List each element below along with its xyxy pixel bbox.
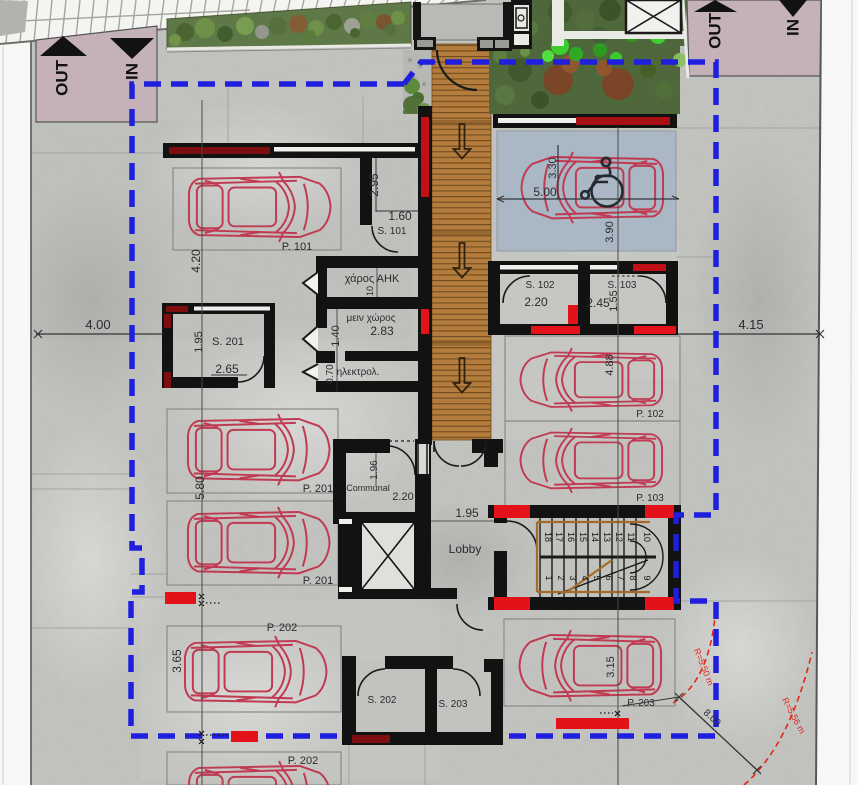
svg-text:4.00: 4.00 — [85, 317, 110, 332]
svg-text:13: 13 — [602, 532, 612, 542]
svg-text:P. 203: P. 203 — [627, 698, 655, 709]
svg-text:S. 203: S. 203 — [439, 699, 468, 710]
svg-text:P. 201: P. 201 — [303, 575, 333, 587]
svg-text:ηλεκτρολ.: ηλεκτρολ. — [337, 367, 380, 378]
svg-text:P. 103: P. 103 — [636, 493, 664, 504]
svg-text:S. 202: S. 202 — [368, 695, 397, 706]
svg-text:2.20: 2.20 — [392, 491, 413, 503]
svg-text:9: 9 — [642, 575, 652, 580]
svg-text:4.20: 4.20 — [189, 249, 203, 273]
svg-text:4: 4 — [580, 575, 590, 580]
svg-text:17: 17 — [554, 532, 564, 542]
svg-text:S. 103: S. 103 — [608, 280, 637, 291]
svg-text:3.30: 3.30 — [547, 157, 559, 178]
svg-text:2: 2 — [556, 575, 566, 580]
svg-text:P. 101: P. 101 — [282, 241, 312, 253]
svg-text:3: 3 — [568, 575, 578, 580]
svg-text:8: 8 — [628, 575, 638, 580]
svg-text:2.83: 2.83 — [370, 324, 394, 338]
svg-text:1.95: 1.95 — [193, 331, 205, 352]
svg-text:2.20: 2.20 — [524, 295, 548, 309]
svg-text:1.95: 1.95 — [455, 506, 479, 520]
svg-text:P. 102: P. 102 — [636, 409, 664, 420]
svg-text:11: 11 — [626, 532, 636, 541]
svg-text:2.95: 2.95 — [367, 173, 381, 197]
svg-text:2.65: 2.65 — [215, 362, 239, 376]
svg-text:16: 16 — [566, 532, 576, 542]
svg-text:μειν χώρος: μειν χώρος — [346, 312, 395, 324]
svg-text:OUT: OUT — [52, 59, 71, 96]
svg-text:0.70: 0.70 — [325, 364, 336, 384]
svg-text:1.40: 1.40 — [330, 325, 342, 346]
svg-text:5.80: 5.80 — [193, 476, 207, 500]
svg-text:P. 202: P. 202 — [288, 755, 318, 767]
svg-text:10: 10 — [642, 532, 652, 542]
svg-text:1.55: 1.55 — [608, 290, 620, 311]
svg-text:1.60: 1.60 — [388, 209, 412, 223]
svg-text:3.90: 3.90 — [604, 221, 616, 242]
svg-text:3.65: 3.65 — [170, 649, 184, 673]
svg-text:12: 12 — [614, 532, 624, 542]
svg-text:Communal: Communal — [346, 483, 390, 493]
svg-text:3.15: 3.15 — [605, 656, 617, 677]
svg-text:1.96: 1.96 — [369, 460, 380, 480]
svg-text:χάρος ΑΗΚ: χάρος ΑΗΚ — [345, 273, 400, 285]
svg-text:S. 102: S. 102 — [526, 280, 555, 291]
svg-text:2.45: 2.45 — [586, 296, 610, 310]
svg-text:6: 6 — [604, 575, 614, 580]
svg-text:4.88: 4.88 — [604, 354, 616, 375]
svg-text:Lobby: Lobby — [449, 542, 482, 556]
svg-text:IN: IN — [783, 19, 802, 36]
svg-text:S. 101: S. 101 — [378, 226, 407, 237]
svg-text:P. 201: P. 201 — [303, 483, 333, 495]
svg-text:S. 201: S. 201 — [212, 336, 244, 348]
svg-text:10: 10 — [365, 286, 375, 296]
svg-text:5.00: 5.00 — [533, 185, 557, 199]
svg-text:4.15: 4.15 — [738, 317, 763, 332]
svg-text:14: 14 — [590, 532, 600, 542]
svg-text:15: 15 — [578, 532, 588, 542]
svg-text:OUT: OUT — [705, 12, 724, 49]
svg-text:IN: IN — [122, 63, 141, 80]
svg-text:18: 18 — [543, 532, 553, 542]
svg-text:P. 202: P. 202 — [267, 622, 297, 634]
svg-text:5: 5 — [592, 575, 602, 580]
svg-text:1: 1 — [544, 575, 554, 580]
